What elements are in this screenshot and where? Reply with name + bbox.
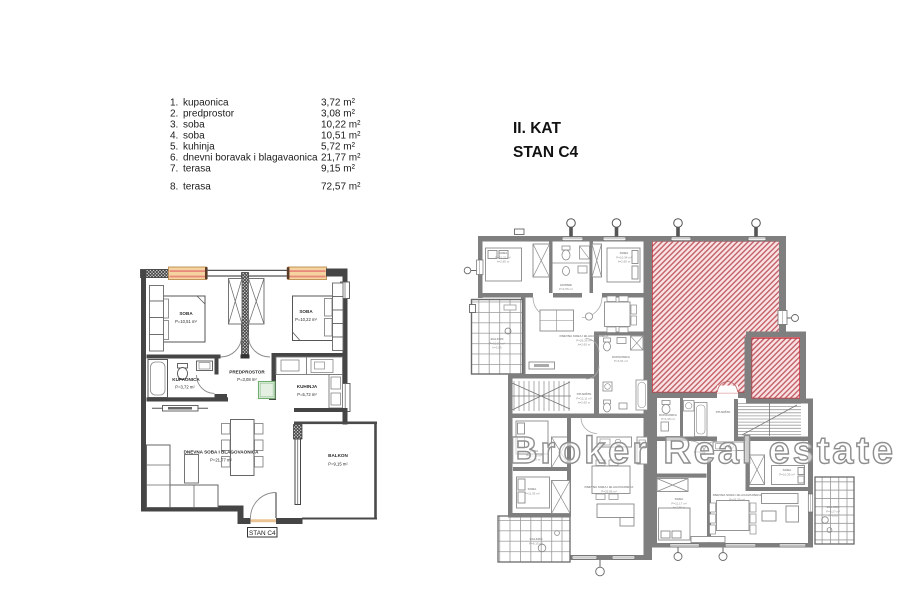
svg-text:SOBA: SOBA — [620, 251, 630, 255]
svg-text:P=25,85 m²: P=25,85 m² — [601, 490, 617, 494]
svg-text:5.: 5. — [170, 142, 178, 153]
svg-text:10,22 m²: 10,22 m² — [321, 120, 361, 131]
svg-text:10,51 m²: 10,51 m² — [321, 131, 361, 142]
svg-text:DNEVNA SOBA I BLAGAVAONICA: DNEVNA SOBA I BLAGAVAONICA — [713, 493, 762, 497]
svg-text:PREDPROSTOR: PREDPROSTOR — [229, 370, 265, 375]
svg-text:P=26,35 m²: P=26,35 m² — [729, 498, 745, 502]
svg-text:kuhinja: kuhinja — [183, 142, 215, 153]
svg-text:3,08 m²: 3,08 m² — [321, 109, 356, 120]
svg-text:SOBA: SOBA — [528, 487, 538, 491]
svg-text:BALKON: BALKON — [827, 505, 840, 509]
svg-text:DNEVNA SOBA I BLAGOVAONICA: DNEVNA SOBA I BLAGOVAONICA — [184, 450, 260, 455]
svg-text:3,72 m²: 3,72 m² — [321, 98, 356, 109]
svg-text:terasa: terasa — [183, 164, 211, 175]
svg-text:SOBA: SOBA — [179, 311, 193, 316]
svg-text:BALKON: BALKON — [530, 537, 543, 541]
svg-text:P=5,72 m²: P=5,72 m² — [297, 392, 317, 397]
svg-text:h=3,05: h=3,05 — [828, 514, 838, 518]
svg-text:soba: soba — [183, 131, 205, 142]
svg-text:h=2,65 m: h=2,65 m — [497, 260, 510, 264]
svg-text:Broker Real estate: Broker Real estate — [510, 430, 896, 472]
svg-text:P=4,35 m²: P=4,35 m² — [661, 417, 675, 421]
svg-text:9,15 m²: 9,15 m² — [321, 164, 356, 175]
svg-text:h=2,65 m: h=2,65 m — [618, 260, 631, 264]
svg-text:h=2,65 m: h=2,65 m — [578, 401, 591, 405]
svg-text:P=9,15 m²: P=9,15 m² — [328, 462, 348, 467]
svg-text:terasa: terasa — [183, 182, 211, 193]
svg-text:P=3,72 m²: P=3,72 m² — [175, 385, 195, 390]
svg-text:72,57 m²: 72,57 m² — [321, 182, 361, 193]
svg-text:8.: 8. — [170, 182, 178, 193]
svg-text:STAN C4: STAN C4 — [249, 530, 276, 537]
svg-text:7.: 7. — [170, 164, 178, 175]
svg-text:DNEVNA SOBA I BLAGOVAONICA: DNEVNA SOBA I BLAGOVAONICA — [560, 334, 610, 338]
svg-text:predprostor: predprostor — [183, 109, 235, 120]
svg-text:3.: 3. — [170, 120, 178, 131]
svg-text:P=4,51 m²: P=4,51 m² — [614, 359, 628, 363]
svg-text:h=2,65 m: h=2,65 m — [578, 343, 591, 347]
svg-text:21,77 m²: 21,77 m² — [321, 153, 361, 164]
svg-text:BALKON: BALKON — [491, 337, 504, 341]
svg-text:P=10,51 m²: P=10,51 m² — [175, 319, 197, 324]
svg-text:SOBA: SOBA — [499, 251, 509, 255]
svg-text:4.: 4. — [170, 131, 178, 142]
svg-text:DNEVNA SOBA I BLAGOVAONICA: DNEVNA SOBA I BLAGOVAONICA — [585, 485, 635, 489]
svg-text:kupaonica: kupaonica — [183, 98, 229, 109]
svg-text:KUPAONICA: KUPAONICA — [172, 377, 200, 382]
svg-text:dnevni boravak i blagavaonica: dnevni boravak i blagavaonica — [183, 153, 318, 164]
svg-text:h=3,05: h=3,05 — [492, 346, 502, 350]
svg-text:soba: soba — [183, 120, 205, 131]
svg-text:STUBIŠTE: STUBIŠTE — [577, 391, 592, 396]
svg-text:SOBA: SOBA — [675, 497, 685, 501]
svg-text:1.: 1. — [170, 98, 178, 109]
svg-text:P=21,77 m²: P=21,77 m² — [210, 458, 232, 463]
svg-text:2.: 2. — [170, 109, 178, 120]
svg-text:5,72 m²: 5,72 m² — [321, 142, 356, 153]
svg-text:STUBIŠTE: STUBIŠTE — [716, 409, 731, 414]
svg-text:h=2,65 m: h=2,65 m — [673, 506, 686, 510]
svg-text:6.: 6. — [170, 153, 178, 164]
svg-text:SOBA: SOBA — [299, 309, 313, 314]
svg-text:II. KAT: II. KAT — [513, 120, 561, 137]
svg-text:P=10,35 m²: P=10,35 m² — [779, 473, 795, 477]
svg-text:P=3,08 m²: P=3,08 m² — [237, 377, 257, 382]
svg-text:P=8,15 m²: P=8,15 m² — [529, 542, 543, 546]
svg-text:BALKON: BALKON — [328, 453, 348, 458]
svg-text:P=10,22 m²: P=10,22 m² — [295, 317, 317, 322]
svg-text:P=11,35 m²: P=11,35 m² — [524, 492, 539, 496]
svg-text:P=4,56 m²: P=4,56 m² — [559, 287, 573, 291]
svg-text:KUHINJA: KUHINJA — [297, 384, 318, 389]
svg-text:STAN C4: STAN C4 — [513, 144, 579, 161]
